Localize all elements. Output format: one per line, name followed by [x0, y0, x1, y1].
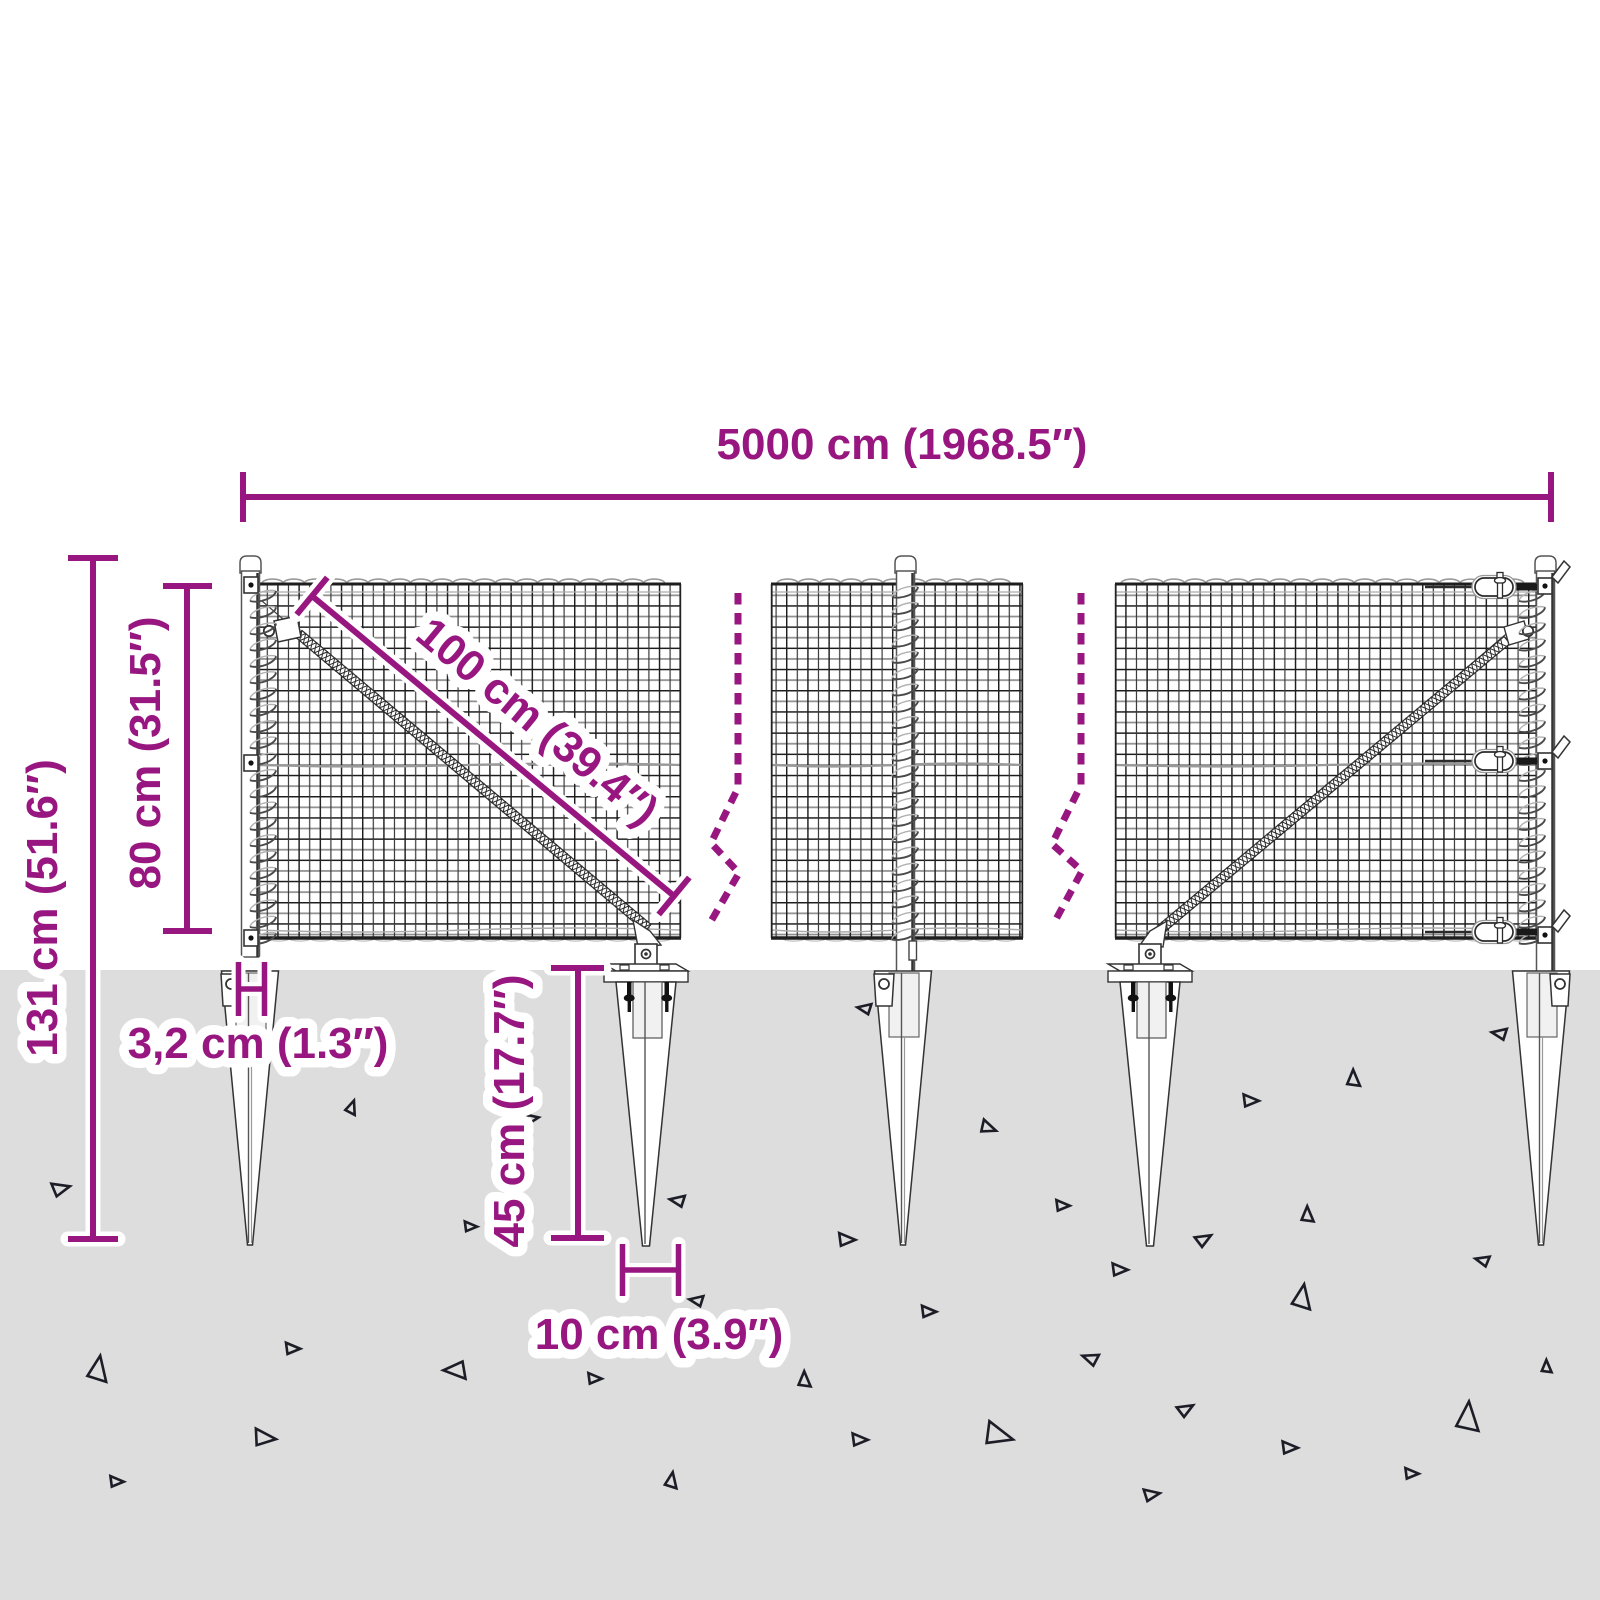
svg-text:5000 cm (1968.5″): 5000 cm (1968.5″) [717, 420, 1088, 469]
svg-text:80 cm (31.5″): 80 cm (31.5″) [121, 616, 170, 889]
svg-text:131 cm (51.6″): 131 cm (51.6″) [18, 759, 67, 1056]
svg-text:3,2 cm (1.3″): 3,2 cm (1.3″) [128, 1019, 389, 1068]
svg-text:10 cm (3.9″): 10 cm (3.9″) [535, 1310, 784, 1359]
svg-text:45 cm (17.7″): 45 cm (17.7″) [485, 974, 534, 1247]
